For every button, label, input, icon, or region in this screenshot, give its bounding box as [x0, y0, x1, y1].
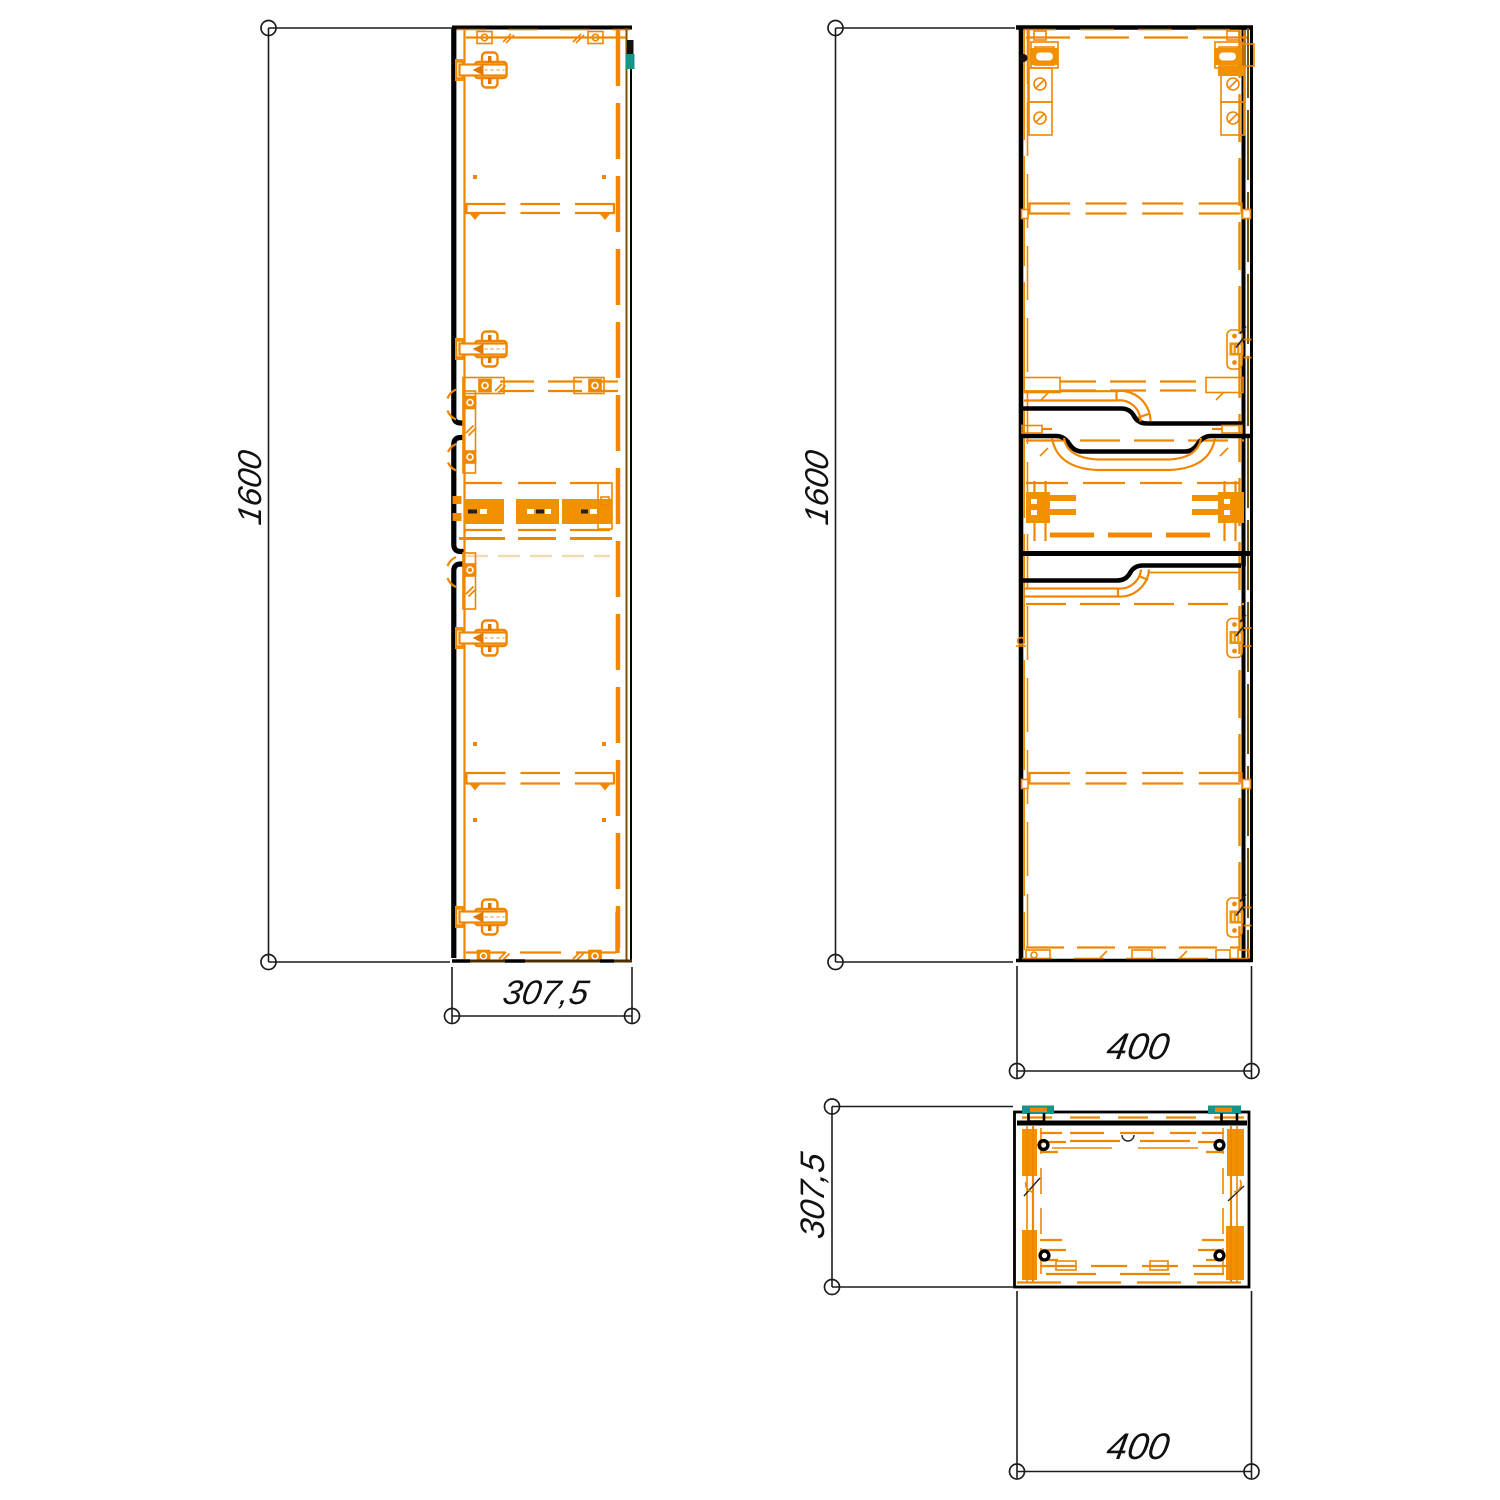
svg-text:307,5: 307,5: [500, 974, 593, 1012]
svg-text:400: 400: [1104, 1425, 1173, 1467]
svg-text:400: 400: [1104, 1025, 1173, 1067]
svg-text:1600: 1600: [232, 447, 269, 527]
svg-text:307,5: 307,5: [794, 1149, 832, 1242]
svg-text:1600: 1600: [799, 447, 836, 527]
